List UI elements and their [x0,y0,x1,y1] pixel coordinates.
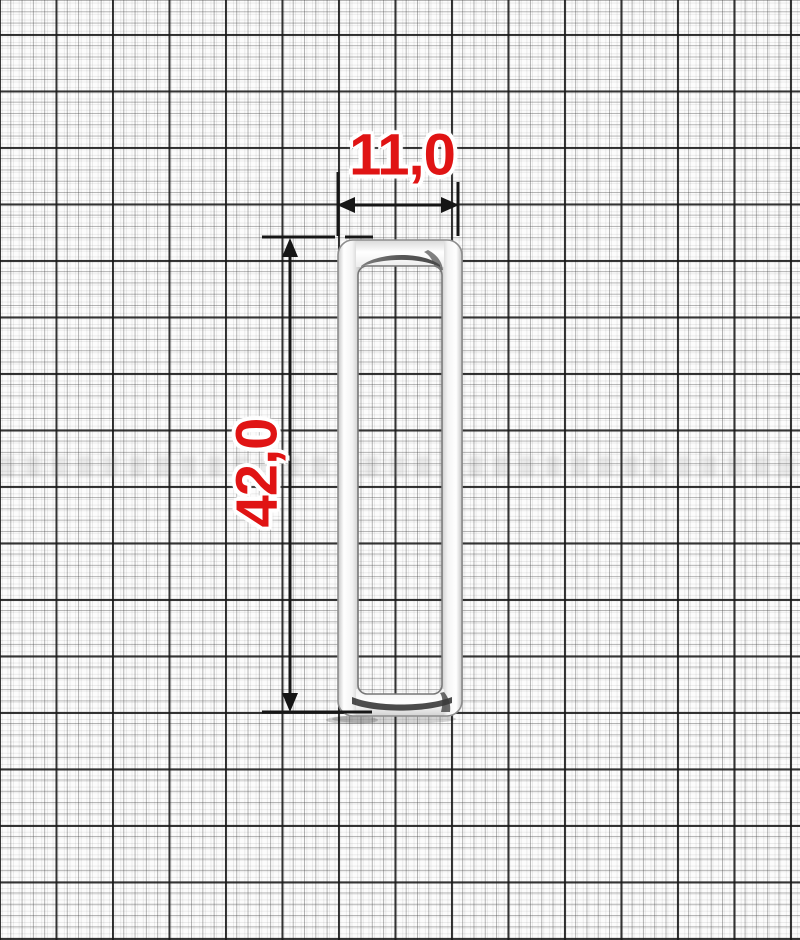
arrowhead-up-icon [282,238,298,257]
frame-shadow-left [326,716,378,724]
width-extension-line-left [337,172,340,236]
height-extension-line-top-dash [345,236,373,239]
buckle-frame [326,240,462,724]
arrowhead-right-icon [441,197,459,213]
height-extension-line-top [262,236,335,239]
width-dimension-line [353,204,447,207]
technical-drawing-page: 11,0 42,0 [0,0,800,940]
frame-inner-edge [358,266,442,694]
frame-metal-shading [338,240,462,716]
arrowhead-left-icon [337,197,355,213]
width-dimension-label: 11,0 [349,122,455,189]
height-dimension-label: 42,0 [224,419,291,528]
height-extension-line-bottom [262,711,372,714]
width-extension-line-right [457,182,460,236]
arrowhead-down-icon [282,693,298,712]
